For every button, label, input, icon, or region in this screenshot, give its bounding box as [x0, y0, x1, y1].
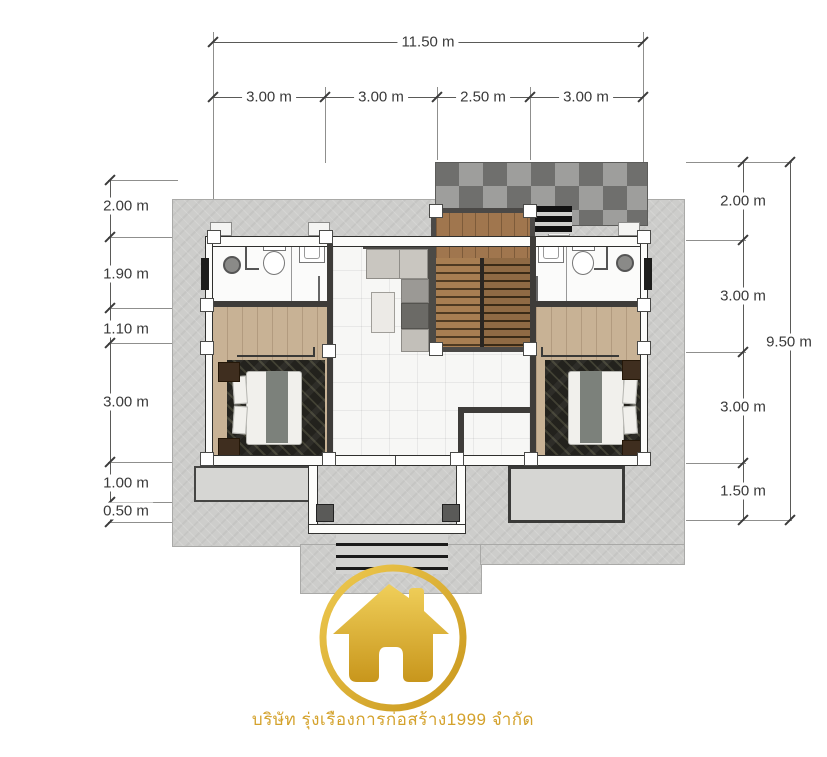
bath-partition-line	[291, 243, 292, 303]
bed-pillow	[232, 406, 248, 435]
stair-shelf	[535, 206, 572, 234]
toilet	[263, 251, 285, 275]
pilaster	[322, 344, 336, 358]
pilaster	[429, 342, 443, 356]
pilaster	[200, 298, 214, 312]
nightstand	[622, 360, 642, 380]
sink-basin	[543, 245, 559, 259]
house-icon	[333, 584, 449, 682]
bed-runner	[580, 371, 602, 443]
connector-line	[108, 343, 178, 344]
pilaster	[523, 342, 537, 356]
balcony-post	[442, 504, 460, 522]
dim-label: 0.50 m	[99, 503, 153, 520]
dim-label: 3.00 m	[354, 89, 408, 106]
extension-line	[325, 87, 326, 163]
connector-line	[686, 352, 746, 353]
pilaster	[319, 230, 333, 244]
stair-flight-left	[436, 258, 480, 347]
window-left	[201, 258, 209, 290]
sofa-cushion	[366, 249, 400, 279]
dim-label: 3.00 m	[99, 394, 153, 411]
connector-line	[108, 180, 178, 181]
balcony-post	[316, 504, 334, 522]
sofa-cushion	[401, 303, 429, 329]
pilaster	[322, 452, 336, 466]
sofa-cushion	[401, 279, 429, 303]
pilaster	[637, 298, 651, 312]
wall-bottom-left	[205, 455, 331, 466]
wall-bath-divider-left	[206, 301, 333, 307]
shower-head	[616, 254, 634, 272]
sink-basin	[304, 245, 320, 259]
connector-line	[686, 463, 746, 464]
balcony-door	[330, 455, 530, 466]
shower-partition	[245, 268, 259, 270]
pilaster	[637, 341, 651, 355]
coffee-table	[371, 292, 395, 333]
dim-label: 2.50 m	[456, 89, 510, 106]
connector-line	[108, 308, 178, 309]
dim-label: 1.90 m	[99, 266, 153, 283]
dim-label: 3.00 m	[559, 89, 613, 106]
wall-top	[206, 236, 648, 247]
pilaster	[523, 204, 537, 218]
door-leaf	[536, 276, 538, 302]
connector-line	[108, 237, 178, 238]
bath-partition-line	[566, 243, 567, 303]
shower-partition	[594, 268, 608, 270]
dim-label: 3.00 m	[242, 89, 296, 106]
pilaster	[200, 452, 214, 466]
connector-line	[686, 240, 746, 241]
sofa-cushion	[399, 249, 428, 279]
dim-label: 3.00 m	[716, 288, 770, 305]
staircase	[431, 208, 535, 352]
shower-head	[223, 256, 241, 274]
balcony-right	[508, 466, 625, 523]
wardrobe-line	[541, 347, 543, 357]
dim-label: 2.00 m	[716, 193, 770, 210]
pilaster	[450, 452, 464, 466]
pilaster	[429, 204, 443, 218]
dim-line	[110, 180, 111, 522]
balcony-left	[194, 466, 316, 502]
floor-plan-canvas: 11.50 m 3.00 m 3.00 m 2.50 m 3.00 m 2.00…	[0, 0, 827, 757]
wall-bottom-right	[523, 455, 648, 466]
balcony-rail-front	[308, 524, 466, 534]
dim-label-total-height: 9.50 m	[762, 334, 816, 351]
toilet	[572, 251, 594, 275]
wardrobe-line	[237, 355, 315, 357]
stair-flight-right	[484, 258, 530, 347]
company-name: บริษัท รุ่งเรืองการก่อสร้าง1999 จำกัด	[193, 706, 593, 733]
nightstand	[218, 362, 240, 382]
dim-line	[743, 162, 744, 520]
concrete-slab-right	[480, 544, 685, 565]
pilaster	[200, 341, 214, 355]
dim-label: 1.00 m	[99, 475, 153, 492]
bed-pillow	[622, 406, 638, 435]
wardrobe-line	[313, 347, 315, 357]
dim-label: 3.00 m	[716, 399, 770, 416]
stair-stringer	[480, 258, 484, 347]
bed-runner	[266, 371, 288, 443]
wall-nook-h	[458, 407, 533, 413]
company-logo	[313, 558, 473, 718]
pilaster	[524, 452, 538, 466]
pilaster	[637, 230, 651, 244]
wall-bath-divider-right	[530, 301, 648, 307]
pilaster	[207, 230, 221, 244]
door-mullion	[395, 456, 396, 465]
connector-line	[108, 462, 178, 463]
dim-label: 1.10 m	[99, 321, 153, 338]
dim-label-total-width: 11.50 m	[397, 34, 458, 51]
wardrobe-line	[541, 355, 619, 357]
dim-label: 2.00 m	[99, 198, 153, 215]
pilaster	[637, 452, 651, 466]
door-leaf	[318, 276, 320, 302]
extension-line	[213, 32, 214, 199]
dim-label: 1.50 m	[716, 483, 770, 500]
sofa-cushion	[401, 329, 429, 352]
window-right	[644, 258, 652, 290]
connector-line	[108, 522, 178, 523]
